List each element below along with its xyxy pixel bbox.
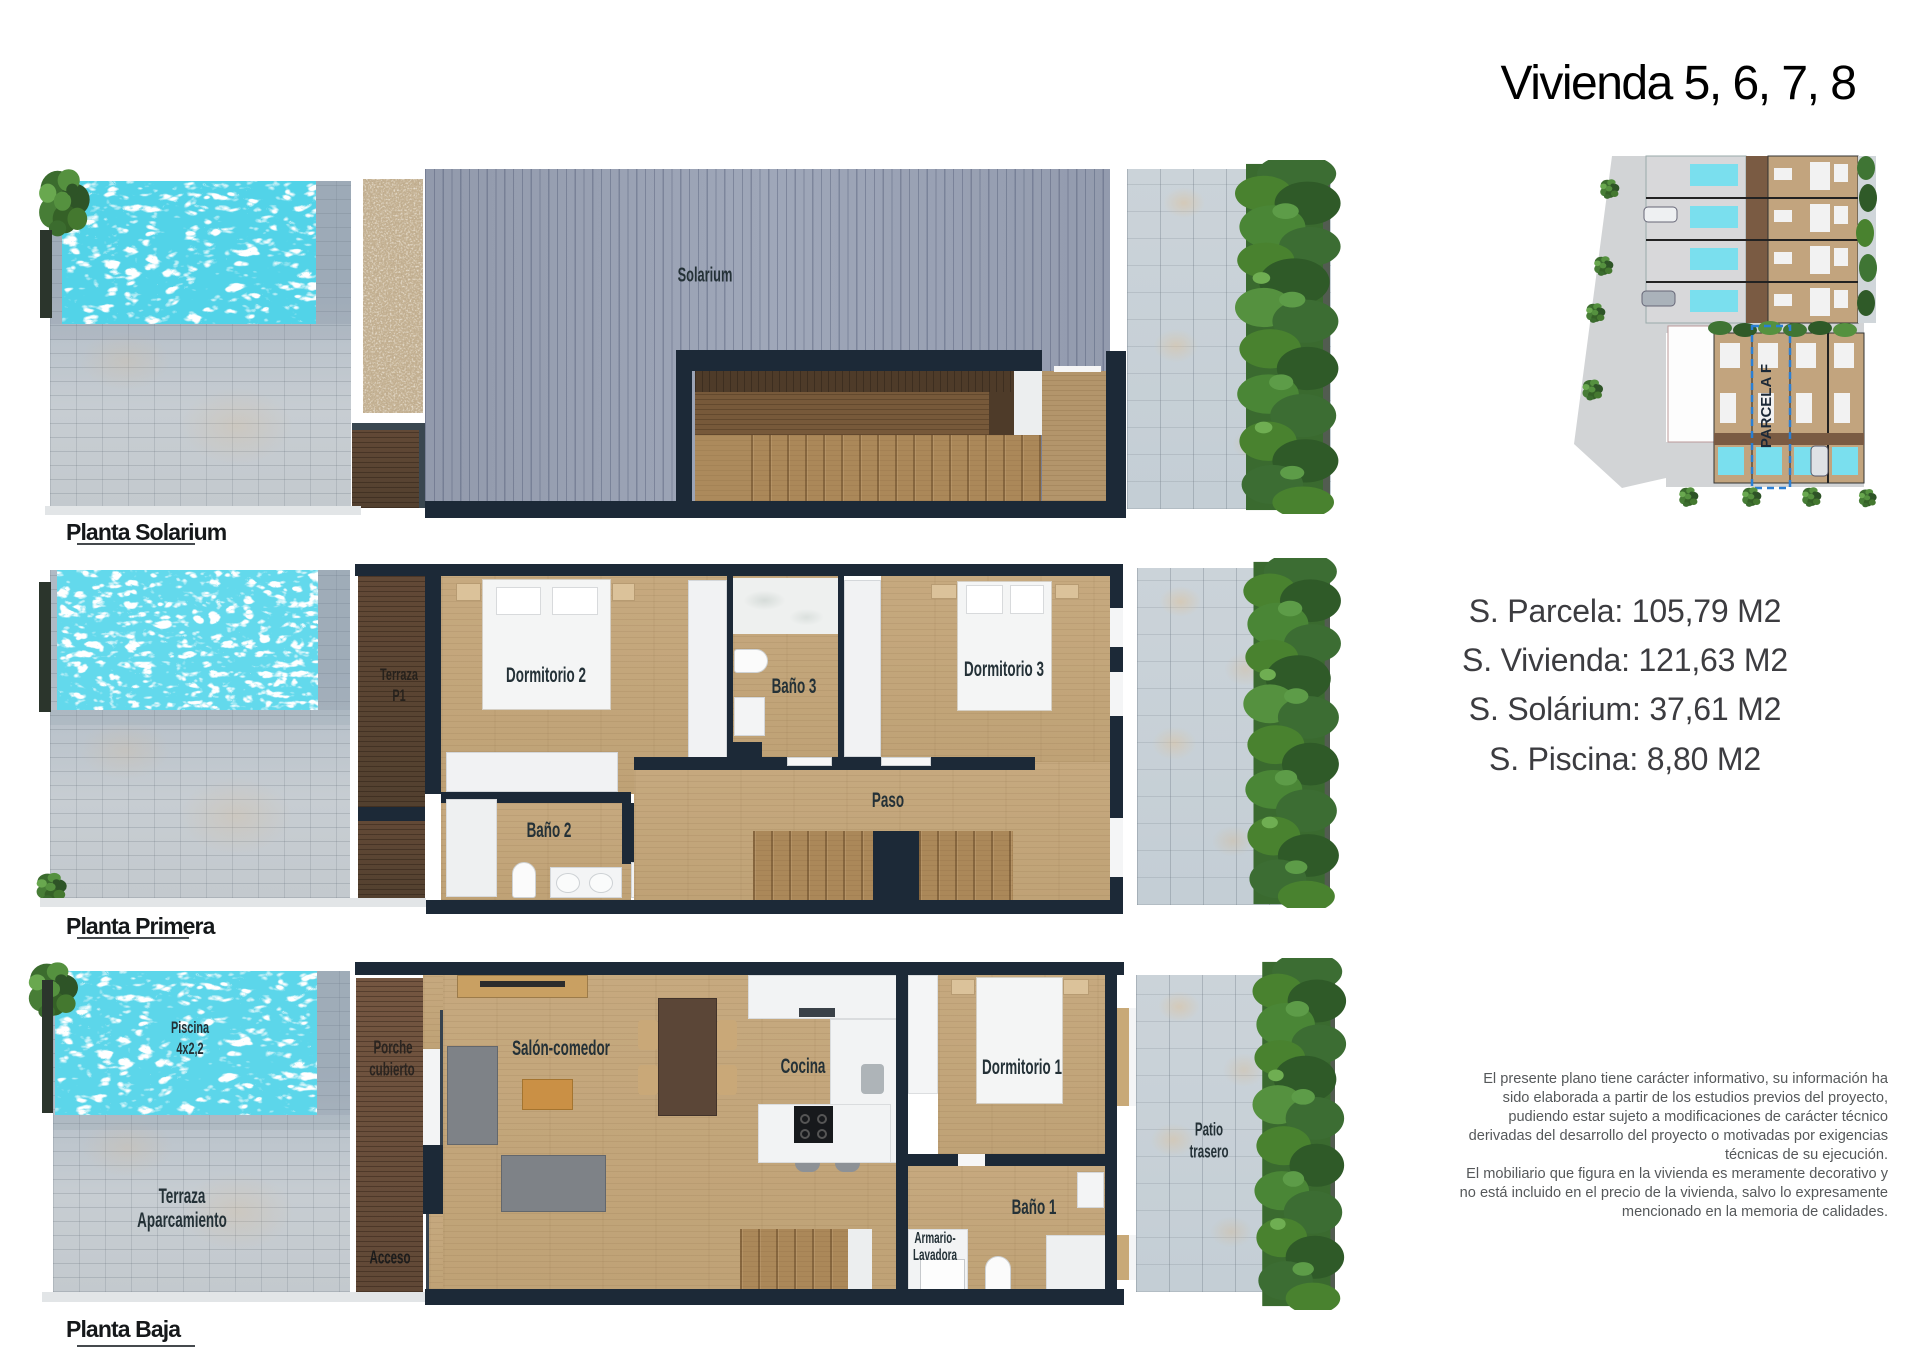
svg-text:PARCELA F: PARCELA F [1758, 364, 1775, 448]
